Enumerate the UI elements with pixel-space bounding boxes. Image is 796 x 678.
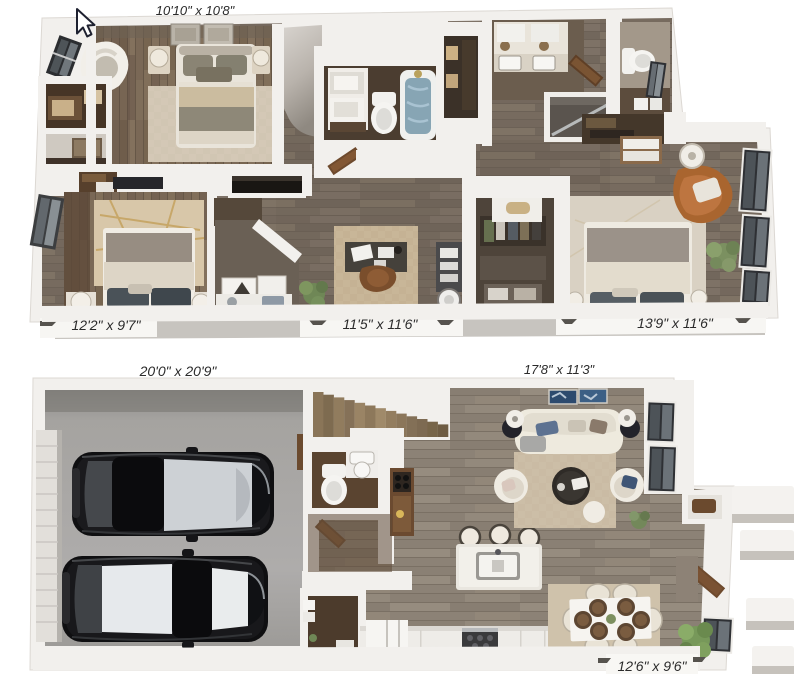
svg-text:13'9" x 11'6": 13'9" x 11'6" bbox=[637, 315, 714, 331]
svg-text:12'2" x 9'7": 12'2" x 9'7" bbox=[72, 317, 142, 333]
svg-text:12'6" x 9'6": 12'6" x 9'6" bbox=[618, 658, 688, 674]
svg-text:11'5" x 11'6": 11'5" x 11'6" bbox=[343, 316, 419, 332]
svg-text:17'8" x 11'3": 17'8" x 11'3" bbox=[524, 362, 596, 377]
svg-text:10'10" x 10'8": 10'10" x 10'8" bbox=[156, 3, 236, 18]
svg-text:20'0" x 20'9": 20'0" x 20'9" bbox=[139, 363, 218, 379]
